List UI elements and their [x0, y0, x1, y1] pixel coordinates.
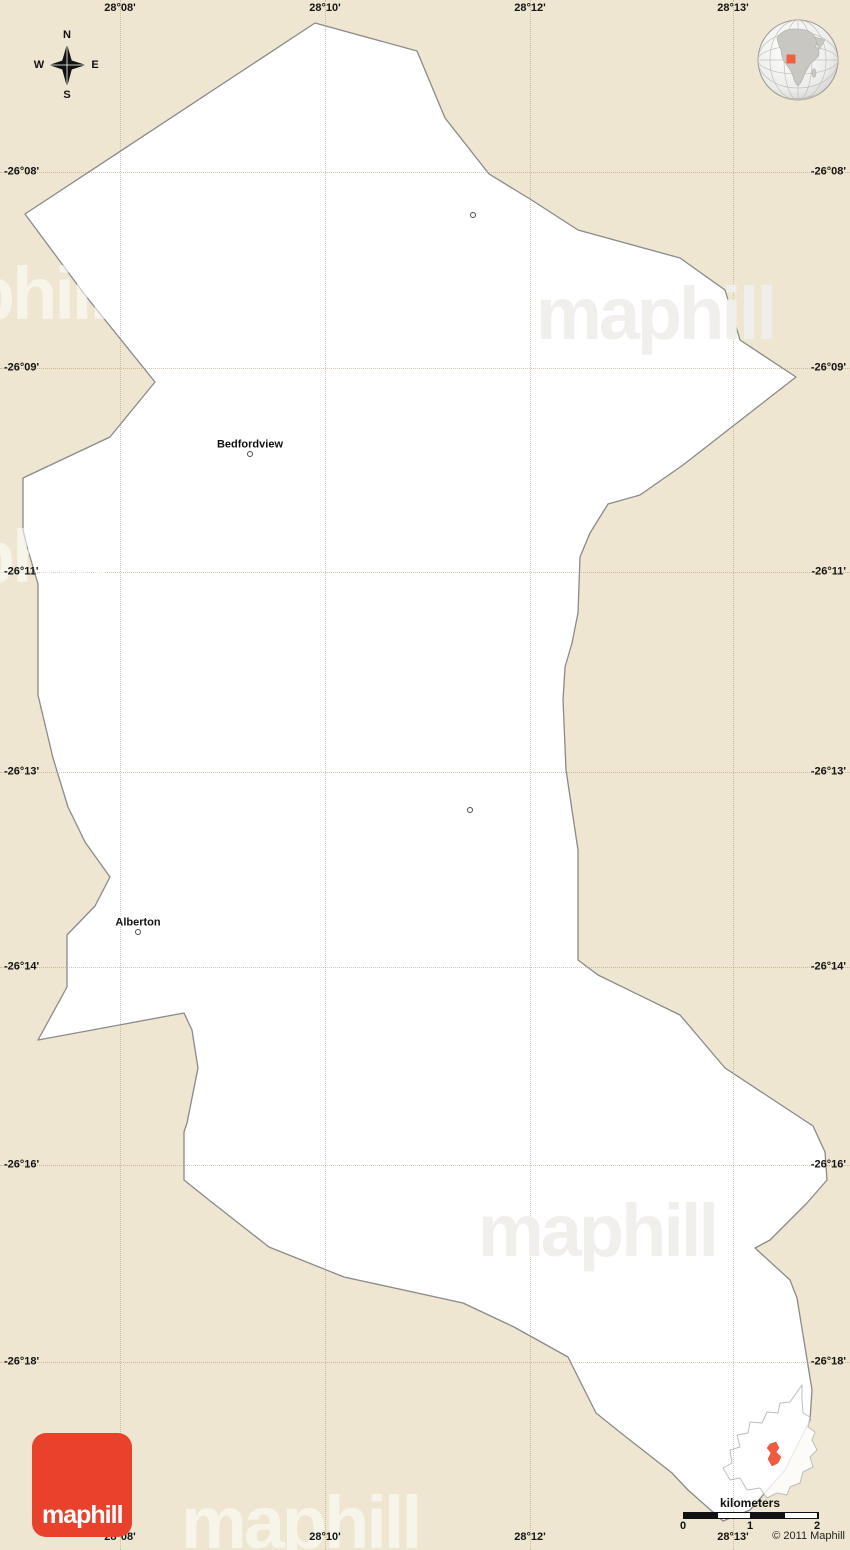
- grid-label-latitude-right: -26°11': [811, 565, 846, 577]
- maphill-logo[interactable]: maphill: [32, 1433, 132, 1537]
- grid-label-latitude-left: -26°11': [4, 565, 39, 577]
- grid-label-latitude-left: -26°13': [4, 765, 39, 777]
- grid-label-longitude-bottom: 28°13': [717, 1531, 749, 1543]
- scale-segment: [717, 1513, 752, 1518]
- scale-segment: [751, 1513, 784, 1518]
- scale-segment: [684, 1513, 717, 1518]
- scale-bar-title: kilometers: [683, 1496, 817, 1510]
- grid-label-longitude-top: 28°08': [104, 2, 136, 14]
- grid-label-latitude-right: -26°13': [811, 765, 846, 777]
- grid-label-latitude-right: -26°16': [811, 1158, 846, 1170]
- grid-label-latitude-left: -26°09': [4, 361, 39, 373]
- grid-label-latitude-right: -26°09': [811, 361, 846, 373]
- scale-bar: [683, 1512, 819, 1519]
- compass-south-label: S: [63, 89, 70, 101]
- compass-west-label: W: [34, 59, 44, 71]
- grid-label-latitude-left: -26°16': [4, 1158, 39, 1170]
- grid-label-longitude-top: 28°12': [514, 2, 546, 14]
- grid-label-latitude-right: -26°14': [811, 960, 846, 972]
- scale-tick-label: 1: [747, 1520, 753, 1532]
- locator-globe: [753, 16, 843, 106]
- grid-label-latitude-right: -26°18': [811, 1355, 846, 1367]
- compass-east-label: E: [91, 59, 98, 71]
- grid-label-longitude-bottom: 28°12': [514, 1531, 546, 1543]
- compass-north-label: N: [63, 29, 71, 41]
- grid-label-latitude-left: -26°14': [4, 960, 39, 972]
- scale-tick-label: 0: [680, 1520, 686, 1532]
- grid-label-latitude-left: -26°08': [4, 165, 39, 177]
- map-canvas: maphillmaphillmaphillmaphillmaphill Bedf…: [0, 0, 850, 1550]
- compass-rose: N S W E: [28, 26, 108, 106]
- grid-labels-layer: 28°08'28°08'28°10'28°10'28°12'28°12'28°1…: [0, 0, 850, 1550]
- maphill-logo-text: maphill: [42, 1501, 123, 1530]
- globe-region-marker: [787, 55, 796, 64]
- grid-label-latitude-left: -26°18': [4, 1355, 39, 1367]
- scale-segment: [784, 1513, 819, 1518]
- grid-label-latitude-right: -26°08': [811, 165, 846, 177]
- copyright-text: © 2011 Maphill: [772, 1530, 845, 1542]
- globe-icon: [753, 16, 843, 106]
- grid-label-longitude-top: 28°10': [309, 2, 341, 14]
- grid-label-longitude-bottom: 28°10': [309, 1531, 341, 1543]
- grid-label-longitude-top: 28°13': [717, 2, 749, 14]
